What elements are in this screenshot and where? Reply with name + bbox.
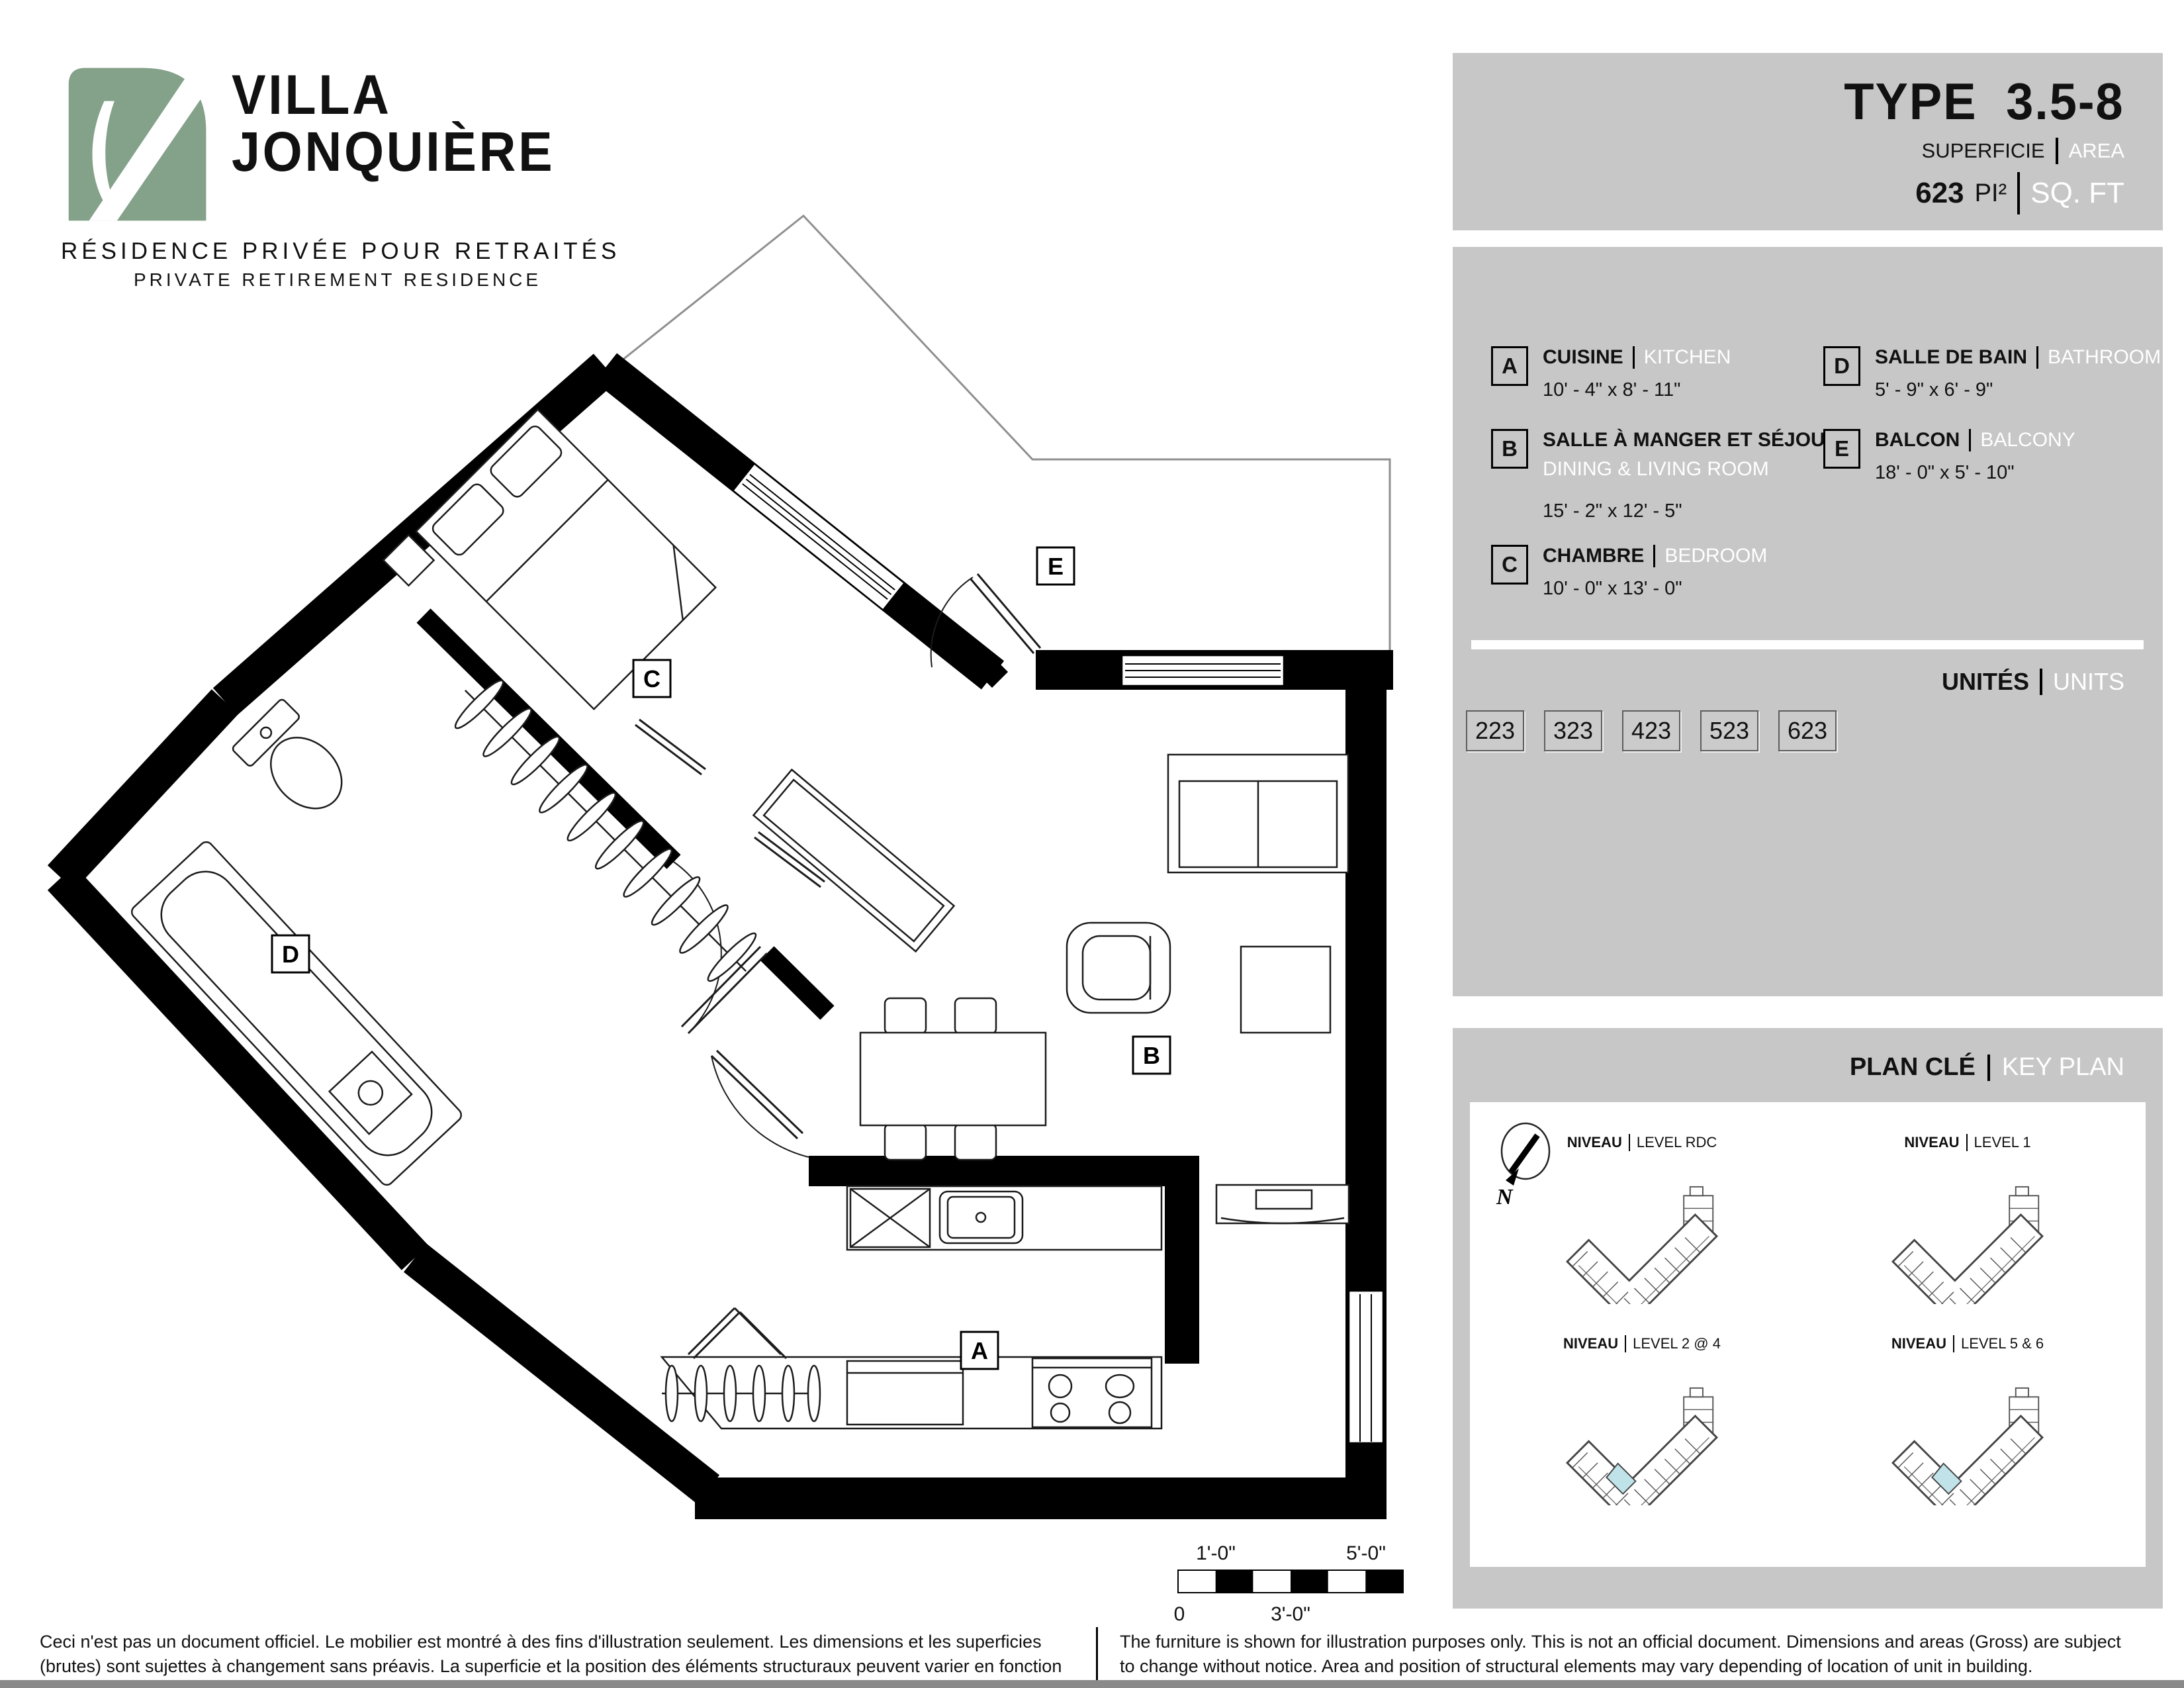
legend-dim: 15' - 2" x 12' - 5" bbox=[1543, 500, 1850, 522]
level-label: LEVEL 1 bbox=[1974, 1134, 2031, 1151]
area-label-row: SUPERFICIE AREA bbox=[1922, 138, 2124, 164]
room-label-a: A bbox=[961, 1332, 998, 1369]
tagline-en: PRIVATE RETIREMENT RESIDENCE bbox=[134, 269, 504, 291]
legend-code: D bbox=[1823, 346, 1860, 386]
svg-text:E: E bbox=[1048, 553, 1064, 580]
svg-text:5'-0": 5'-0" bbox=[1346, 1542, 1386, 1564]
unit-number: 623 bbox=[1778, 710, 1837, 751]
disclaimer-en: The furniture is shown for illustration … bbox=[1120, 1630, 2139, 1679]
legend-fr: SALLE DE BAIN bbox=[1875, 346, 2027, 369]
bedroom-closet-hangers bbox=[442, 667, 770, 995]
legend-item-kitchen: A CUISINE KITCHEN 10' - 4" x 8' - 11" bbox=[1491, 346, 1731, 401]
divider-bar bbox=[1471, 640, 2144, 649]
divider bbox=[2017, 172, 2020, 214]
divider bbox=[2040, 669, 2042, 695]
room-label-c: C bbox=[633, 660, 670, 697]
logo-line2: JONQUIÈRE bbox=[232, 123, 555, 180]
legend-code: E bbox=[1823, 429, 1860, 469]
type-title: TYPE3.5-8 bbox=[1844, 71, 2124, 132]
legend-en: BATHROOM bbox=[2048, 346, 2161, 369]
legend-code: B bbox=[1491, 429, 1528, 469]
legend-code: A bbox=[1491, 346, 1528, 386]
entry-door bbox=[711, 1051, 809, 1157]
room-label-d: D bbox=[272, 935, 309, 972]
unit-number-list: 223 323 423 523 623 bbox=[1466, 710, 1837, 751]
legend-code: C bbox=[1491, 545, 1528, 585]
legend-dim: 18' - 0" x 5' - 10" bbox=[1875, 462, 2075, 484]
logo-line1: VILLA bbox=[232, 66, 555, 123]
legend-fr: CHAMBRE bbox=[1543, 545, 1644, 567]
svg-text:0: 0 bbox=[1174, 1603, 1185, 1625]
floorplan-sheet: A B C D E 1'-0" 5'-0" 0 3'-0" bbox=[0, 0, 2184, 1688]
legend-fr: CUISINE bbox=[1543, 346, 1623, 369]
keyplan-level-rdc: NIVEAULEVEL RDC bbox=[1483, 1134, 1801, 1307]
dining-table bbox=[860, 998, 1046, 1160]
type-panel: TYPE3.5-8 SUPERFICIE AREA 623 PI² SQ. FT bbox=[1453, 53, 2163, 230]
legend-fr: BALCON bbox=[1875, 429, 1960, 451]
svg-text:B: B bbox=[1143, 1042, 1160, 1069]
level-label: LEVEL 2 @ 4 bbox=[1633, 1335, 1721, 1352]
tv-console bbox=[1216, 1185, 1349, 1223]
svg-text:1'-0": 1'-0" bbox=[1196, 1542, 1236, 1564]
legend-dim: 10' - 4" x 8' - 11" bbox=[1543, 379, 1731, 401]
room-label-b: B bbox=[1133, 1037, 1170, 1074]
unit-number: 523 bbox=[1700, 710, 1758, 751]
area-value-row: 623 PI² SQ. FT bbox=[1915, 172, 2124, 214]
scale-bar: 1'-0" 5'-0" 0 3'-0" bbox=[1174, 1542, 1403, 1625]
divider bbox=[1987, 1055, 1990, 1081]
divider bbox=[1966, 1134, 1968, 1151]
keyplan-map bbox=[1533, 1356, 1751, 1505]
keyplan-map bbox=[1533, 1155, 1751, 1304]
keyplan-title-fr: PLAN CLÉ bbox=[1850, 1053, 1976, 1082]
disclaimer-fr: Ceci n'est pas un document officiel. Le … bbox=[40, 1630, 1072, 1688]
dishwasher bbox=[847, 1361, 963, 1425]
niveau-label: NIVEAU bbox=[1891, 1335, 1946, 1352]
keyplan-title-en: KEY PLAN bbox=[2002, 1053, 2124, 1082]
divider bbox=[1633, 346, 1635, 369]
legend-item-balcony: E BALCON BALCONY 18' - 0" x 5' - 10" bbox=[1823, 429, 2075, 484]
niveau-label: NIVEAU bbox=[1563, 1335, 1618, 1352]
legend-item-bedroom: C CHAMBRE BEDROOM 10' - 0" x 13' - 0" bbox=[1491, 545, 1767, 600]
window-living-top bbox=[1122, 655, 1284, 686]
units-heading: UNITÉS UNITS bbox=[1942, 668, 2124, 696]
footer-divider bbox=[1096, 1627, 1098, 1684]
keyplan-box: N NIVEAULEVEL RDC NIVEAULEVEL 1 NIVEAULE… bbox=[1470, 1102, 2146, 1567]
divider bbox=[1629, 1134, 1630, 1151]
kitchen-closet-door bbox=[688, 1308, 786, 1358]
units-label-en: UNITS bbox=[2053, 668, 2124, 696]
divider bbox=[1653, 545, 1655, 567]
legend-en: BEDROOM bbox=[1664, 545, 1767, 567]
keyplan-map bbox=[1858, 1356, 2077, 1505]
unit-number: 223 bbox=[1466, 710, 1524, 751]
legend-dim: 5' - 9" x 6' - 9" bbox=[1875, 379, 2161, 401]
level-label: LEVEL RDC bbox=[1637, 1134, 1717, 1151]
area-label: AREA bbox=[2069, 139, 2124, 163]
stove bbox=[1032, 1358, 1152, 1427]
units-label-fr: UNITÉS bbox=[1942, 668, 2029, 696]
superficie-label: SUPERFICIE bbox=[1922, 139, 2045, 163]
svg-text:A: A bbox=[971, 1337, 988, 1364]
keyplan-level-5-6: NIVEAULEVEL 5 & 6 bbox=[1809, 1335, 2126, 1509]
divider bbox=[2056, 138, 2058, 164]
unit-number: 323 bbox=[1544, 710, 1602, 751]
kitchen-counter-top bbox=[847, 1186, 1161, 1250]
room-label-e: E bbox=[1037, 547, 1074, 585]
area-value: 623 bbox=[1915, 177, 1964, 210]
keyplan-level-1: NIVEAULEVEL 1 bbox=[1809, 1134, 2126, 1307]
legend-en: KITCHEN bbox=[1644, 346, 1731, 369]
svg-text:D: D bbox=[282, 941, 299, 968]
keyplan-map bbox=[1858, 1155, 2077, 1304]
keyplan-level-2-4: NIVEAULEVEL 2 @ 4 bbox=[1483, 1335, 1801, 1509]
legend-en: DINING & LIVING ROOM bbox=[1543, 458, 1769, 481]
legend-en: BALCONY bbox=[1980, 429, 2075, 451]
niveau-label: NIVEAU bbox=[1567, 1134, 1622, 1151]
bottom-edge bbox=[0, 1680, 2184, 1688]
sideboard bbox=[754, 770, 954, 952]
area-unit-en: SQ. FT bbox=[2030, 177, 2124, 210]
window-kitchen-right bbox=[1349, 1291, 1383, 1443]
area-unit-fr: PI² bbox=[1975, 179, 2007, 208]
divider bbox=[1969, 429, 1971, 451]
type-label: TYPE bbox=[1844, 72, 1978, 130]
legend-item-bathroom: D SALLE DE BAIN BATHROOM 5' - 9" x 6' - … bbox=[1823, 346, 2161, 401]
keyplan-panel: PLAN CLÉ KEY PLAN N NIVEAULEVEL RDC NIVE… bbox=[1453, 1028, 2163, 1609]
sofa bbox=[1168, 755, 1348, 872]
svg-text:C: C bbox=[643, 665, 660, 692]
divider bbox=[2036, 346, 2038, 369]
divider bbox=[1953, 1335, 1954, 1352]
window-bedroom bbox=[733, 463, 904, 610]
legend-panel: A CUISINE KITCHEN 10' - 4" x 8' - 11" D … bbox=[1453, 247, 2163, 996]
svg-text:3'-0": 3'-0" bbox=[1271, 1603, 1310, 1625]
niveau-label: NIVEAU bbox=[1904, 1134, 1959, 1151]
keyplan-title: PLAN CLÉ KEY PLAN bbox=[1850, 1053, 2124, 1082]
interior-walls bbox=[424, 616, 1199, 1429]
toilet bbox=[232, 698, 360, 827]
level-label: LEVEL 5 & 6 bbox=[1961, 1335, 2044, 1352]
balcony-outline bbox=[609, 216, 1390, 650]
legend-item-dining-living: B SALLE À MANGER ET SÉJOUR DINING & LIVI… bbox=[1491, 429, 1850, 522]
legend-dim: 10' - 0" x 13' - 0" bbox=[1543, 578, 1767, 600]
legend-fr: SALLE À MANGER ET SÉJOUR bbox=[1543, 429, 1839, 451]
tagline-fr: RÉSIDENCE PRIVÉE POUR RETRAITÉS bbox=[61, 238, 524, 265]
divider bbox=[1625, 1335, 1626, 1352]
type-value: 3.5-8 bbox=[2007, 72, 2124, 130]
armchair bbox=[1067, 923, 1170, 1013]
unit-number: 423 bbox=[1622, 710, 1680, 751]
side-table bbox=[1241, 947, 1330, 1033]
